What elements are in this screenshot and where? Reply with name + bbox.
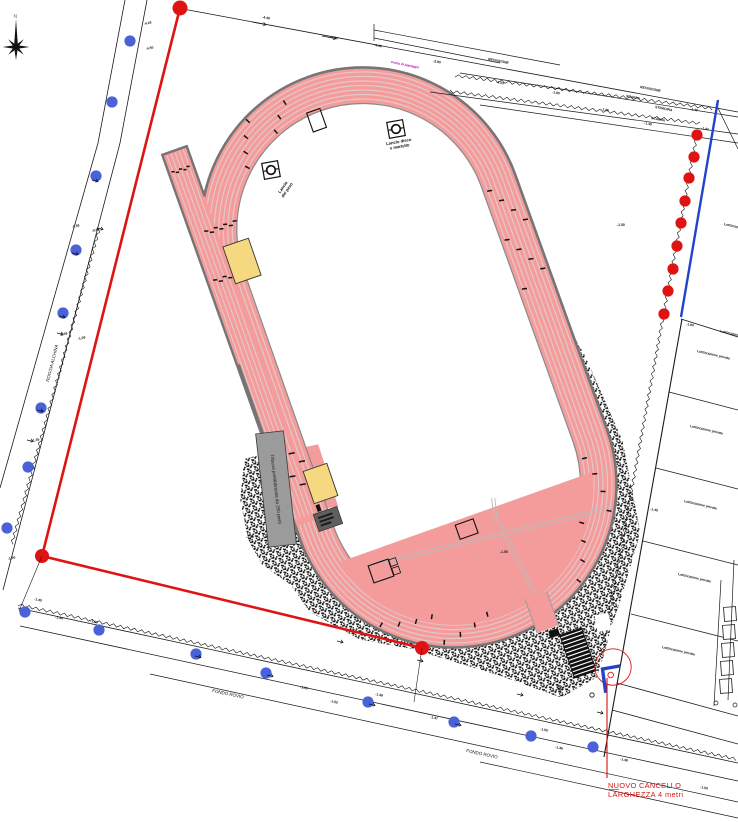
svg-text:-1.50: -1.50	[500, 550, 508, 554]
svg-text:-1.49: -1.49	[246, 535, 254, 539]
svg-text:LARGHEZZA 4 metri: LARGHEZZA 4 metri	[608, 790, 683, 799]
svg-text:NUOVO CANCELLO: NUOVO CANCELLO	[608, 781, 681, 790]
svg-text:N: N	[14, 14, 18, 20]
svg-text:-1.50: -1.50	[617, 223, 625, 227]
